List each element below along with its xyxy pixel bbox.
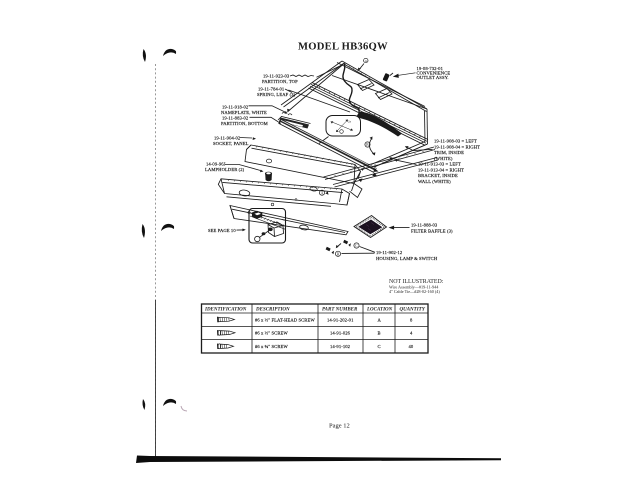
svg-text:A: A — [321, 191, 324, 195]
svg-text:19-11-908-03 = LEFT: 19-11-908-03 = LEFT — [434, 139, 477, 144]
svg-text:14-09-96J: 14-09-96J — [206, 162, 226, 167]
svg-text:19-11-883-02: 19-11-883-02 — [222, 116, 249, 121]
svg-text:MODEL HB36QW: MODEL HB36QW — [298, 42, 388, 53]
svg-text:4″ Cable Tie—#28-02-160 (4): 4″ Cable Tie—#28-02-160 (4) — [389, 289, 440, 294]
svg-text:19-11-904-02: 19-11-904-02 — [214, 136, 241, 141]
svg-text:FILTER BAFFLE (3): FILTER BAFFLE (3) — [411, 228, 453, 233]
svg-text:PART NUMBER: PART NUMBER — [322, 308, 358, 313]
svg-text:#6 x ½″ SCREW: #6 x ½″ SCREW — [255, 331, 288, 336]
svg-text:19-11-888-03: 19-11-888-03 — [411, 223, 438, 228]
svg-text:19-11-913-04 = RIGHT: 19-11-913-04 = RIGHT — [418, 167, 464, 172]
svg-text:LOCATION: LOCATION — [366, 308, 393, 313]
svg-text:C: C — [378, 344, 381, 349]
svg-text:QUANTITY: QUANTITY — [400, 308, 426, 313]
svg-text:B: B — [378, 331, 381, 336]
svg-text:#6 x ⅜″ SCREW: #6 x ⅜″ SCREW — [255, 344, 288, 349]
svg-text:19-11-918-02: 19-11-918-02 — [222, 105, 249, 110]
svg-text:Page 12: Page 12 — [329, 423, 350, 430]
svg-text:19-11-908-04 = RIGHT: 19-11-908-04 = RIGHT — [434, 144, 480, 149]
svg-text:14-91-102: 14-91-102 — [330, 344, 351, 349]
svg-text:OUTLET ASSY.: OUTLET ASSY. — [417, 75, 449, 80]
svg-text:DESCRIPTION: DESCRIPTION — [255, 308, 290, 313]
svg-text:19-11-902-12: 19-11-902-12 — [376, 250, 403, 255]
svg-text:IDENTIFICATION: IDENTIFICATION — [204, 308, 247, 313]
svg-text:A: A — [378, 317, 382, 322]
svg-text:#6 x ½″ FLAT-HEAD SCREW: #6 x ½″ FLAT-HEAD SCREW — [255, 317, 315, 322]
svg-text:2x: 2x — [348, 120, 352, 124]
svg-text:19-11-923-03: 19-11-923-03 — [263, 74, 290, 79]
svg-text:14-91-026: 14-91-026 — [330, 331, 351, 336]
svg-text:14-91-202-01: 14-91-202-01 — [327, 317, 354, 322]
svg-text:19-11-913-03 = LEFT: 19-11-913-03 = LEFT — [418, 162, 461, 167]
svg-text:SEE PAGE 10: SEE PAGE 10 — [208, 228, 236, 233]
svg-text:LAMPHOLDER (2): LAMPHOLDER (2) — [205, 167, 245, 172]
svg-text:19-11-784-01: 19-11-784-01 — [258, 87, 285, 92]
svg-text:(WHITE): (WHITE) — [434, 156, 453, 161]
svg-text:WALL (WHITE): WALL (WHITE) — [418, 179, 451, 184]
svg-text:40: 40 — [409, 344, 414, 349]
